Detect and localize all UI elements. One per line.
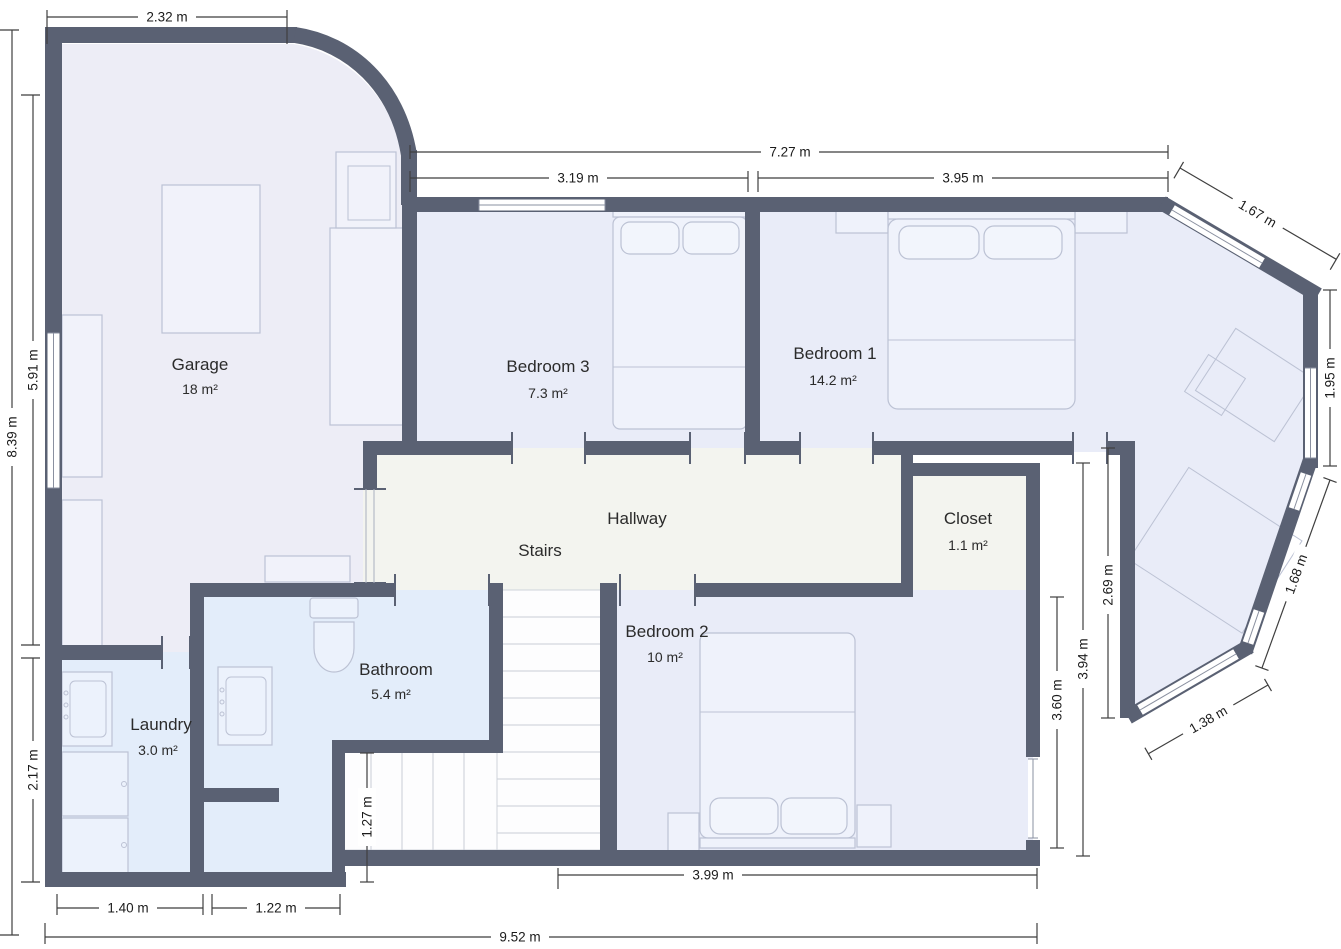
window-garage-left [48, 333, 60, 488]
room-area-bedroom2: 10 m² [647, 649, 683, 665]
room-area-closet: 1.1 m² [948, 537, 988, 553]
dim-closet-bedroom2-height: 3.94 m [1074, 463, 1092, 856]
pillow [683, 222, 739, 254]
wall-segment [745, 197, 760, 455]
dim-label: 9.52 m [499, 930, 540, 945]
dim-bathroom-bottom-width: 1.22 m [212, 894, 340, 917]
garage-appliance[interactable] [336, 152, 396, 228]
dim-left-total-height: 8.39 m [0, 30, 21, 935]
floor-plan-canvas: 2.32 m 7.27 m 3.19 m 3.95 m 1.67 [0, 0, 1341, 949]
window-bay-right [1305, 368, 1316, 458]
wall-segment [901, 463, 1038, 476]
garage-storage-box[interactable] [162, 185, 260, 333]
garage-shelf-left-upper[interactable] [62, 315, 102, 477]
dim-bay-west-wall: 2.69 m [1099, 448, 1117, 718]
dim-label: 3.95 m [942, 171, 983, 186]
room-area-bathroom: 5.4 m² [371, 686, 411, 702]
dim-bedrooms-top-total: 7.27 m [410, 143, 1168, 161]
washer[interactable] [62, 752, 128, 816]
wall-segment [363, 441, 377, 489]
room-label-bedroom1: Bedroom 1 [793, 344, 876, 363]
wall-segment [204, 788, 279, 802]
dim-bedroom1-width: 3.95 m [758, 169, 1168, 192]
dim-label: 1.95 m [1323, 357, 1338, 398]
dim-laundry-left-height: 2.17 m [21, 658, 42, 882]
bed-bedroom3[interactable] [613, 207, 747, 429]
dim-label: 2.69 m [1101, 564, 1116, 605]
pillow [621, 222, 679, 254]
room-label-bedroom3: Bedroom 3 [506, 357, 589, 376]
room-label-closet: Closet [944, 509, 992, 528]
dim-label: 8.39 m [5, 416, 20, 457]
dim-bedroom2-bottom-width: 3.99 m [558, 866, 1037, 889]
room-area-bedroom1: 14.2 m² [809, 372, 857, 388]
wall-segment [332, 850, 618, 866]
dim-label: 1.40 m [107, 901, 148, 916]
dim-label: 1.27 m [360, 796, 375, 837]
room-label-bedroom2: Bedroom 2 [625, 622, 708, 641]
room-area-bedroom3: 7.3 m² [528, 385, 568, 401]
room-label-bathroom: Bathroom [359, 660, 433, 679]
laundry-sink[interactable] [62, 672, 112, 746]
room-label-laundry: Laundry [130, 715, 192, 734]
dim-bedroom3-width: 3.19 m [410, 169, 748, 192]
room-label-hallway: Hallway [607, 509, 667, 528]
dim-label: 7.27 m [769, 145, 810, 160]
window-bedroom2-right [1028, 759, 1038, 838]
bathroom-sink[interactable] [218, 667, 272, 745]
wall-segment [45, 872, 346, 887]
nightstand [857, 805, 891, 847]
garage-bench[interactable] [265, 556, 350, 582]
dim-bottom-total-width: 9.52 m [45, 923, 1037, 946]
dim-garage-left-height: 5.91 m [21, 95, 42, 645]
room-area-garage: 18 m² [182, 381, 218, 397]
pillow [984, 226, 1062, 259]
floor-plan: 2.32 m 7.27 m 3.19 m 3.95 m 1.67 [0, 0, 1341, 949]
wall-segment [745, 441, 800, 455]
dim-label: 1.68 m [1282, 552, 1310, 596]
bed-headboard [700, 838, 855, 848]
pillow [710, 798, 778, 834]
dim-label: 3.94 m [1076, 638, 1091, 679]
wall-segment [600, 850, 1040, 866]
room-area-laundry: 3.0 m² [138, 742, 178, 758]
wall-segment [695, 583, 913, 597]
garage-shelf-right[interactable] [330, 228, 405, 425]
window-bedroom3-top [479, 200, 605, 211]
wall-segment [190, 583, 204, 880]
wall-segment [45, 27, 297, 43]
nightstand [668, 813, 699, 851]
dim-bay-right: 1.95 m [1321, 290, 1339, 466]
room-label-stairs: Stairs [518, 541, 561, 560]
wall-segment [1120, 441, 1135, 718]
dim-label: 2.17 m [26, 749, 41, 790]
wall-segment [402, 150, 417, 455]
dim-laundry-bottom-width: 1.40 m [57, 894, 203, 917]
wall-segment [1026, 463, 1040, 757]
dim-label: 2.32 m [146, 10, 187, 25]
dim-label: 5.91 m [26, 349, 41, 390]
dryer[interactable] [62, 818, 128, 879]
room-label-garage: Garage [172, 355, 229, 374]
wall-segment [600, 583, 617, 866]
wall-segment [45, 645, 162, 660]
wall-segment [489, 583, 503, 752]
wall-segment [190, 583, 395, 597]
toilet[interactable] [310, 598, 358, 672]
dim-label: 3.19 m [557, 171, 598, 186]
garage-shelf-left-lower[interactable] [62, 500, 102, 658]
stairs-vertical-run [497, 590, 607, 850]
dim-label: 3.99 m [692, 868, 733, 883]
wall-segment [402, 441, 512, 455]
dim-label: 3.60 m [1050, 679, 1065, 720]
wall-segment [585, 441, 690, 455]
pillow [781, 798, 847, 834]
dim-label: 1.22 m [255, 901, 296, 916]
pillow [899, 226, 979, 259]
wall-segment [332, 740, 503, 753]
dim-bedroom2-right-height: 3.60 m [1048, 597, 1066, 848]
